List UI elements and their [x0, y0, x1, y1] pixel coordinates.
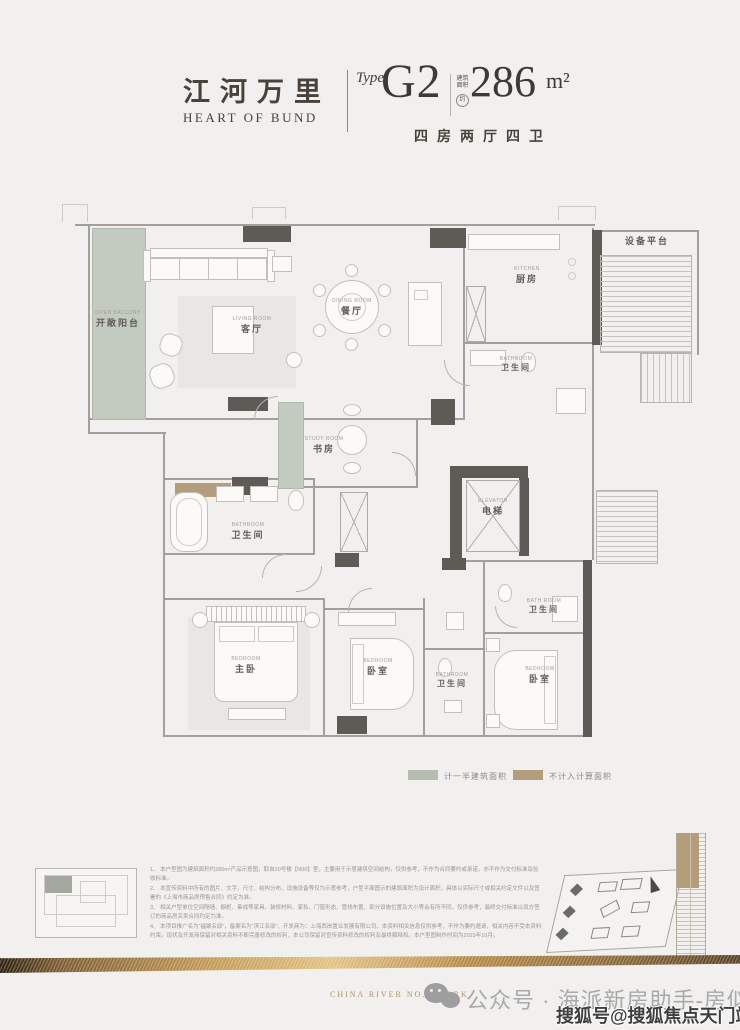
kitchen-sink — [414, 290, 428, 300]
dining-chair — [345, 264, 358, 277]
headboard — [206, 606, 306, 622]
wall-column — [450, 466, 528, 478]
wall — [423, 648, 485, 650]
wall — [463, 228, 465, 420]
site-building-outline — [597, 881, 618, 892]
wall — [323, 608, 425, 610]
bathroom-sink — [250, 486, 278, 502]
site-building-outline — [620, 878, 643, 890]
door-arc — [392, 452, 416, 476]
wechat-eye — [430, 989, 433, 992]
pillow — [352, 644, 364, 704]
legend-swatch-excluded-area — [513, 770, 543, 780]
wall-column — [243, 226, 291, 242]
pillow — [258, 626, 294, 642]
floorplan-page: 江河万里 HEART OF BUND Type G2 建筑面积 约 286 m²… — [0, 0, 740, 1030]
wall — [597, 230, 697, 232]
room-label-dining: DINING ROOM 餐厅 — [332, 298, 372, 317]
room-label-elevator: ELEVATOR 电梯 — [478, 498, 508, 517]
bed-bench — [228, 708, 286, 720]
wall-column — [450, 478, 462, 558]
wall-column — [430, 228, 466, 248]
legend-label-excluded-area: 不计入计算面积 — [549, 771, 612, 782]
wall — [483, 560, 485, 735]
key-plan-outline — [80, 881, 106, 903]
gold-ribbon — [0, 955, 740, 973]
wall — [88, 432, 166, 434]
half-counted-area — [278, 402, 304, 489]
wall — [163, 553, 315, 555]
cabinet — [272, 256, 292, 272]
wall-column — [337, 716, 367, 734]
wall-column — [335, 553, 359, 567]
stairs — [596, 490, 658, 564]
disclaimer-notes: 1、 本户型图为建筑面积约286m²产品示意图，取自20号楼【N00】室，主要用… — [150, 866, 542, 942]
toilet — [288, 490, 304, 511]
armchair — [146, 360, 177, 391]
toilet — [498, 584, 512, 602]
site-building-outline — [631, 901, 651, 913]
room-label-equipment-platform: 设备平台 — [625, 234, 669, 247]
disclaimer-note: 3、 相关户型单位空间隔墙、橱柜、集成等家具、装修材料、家私、门窗形态、管线布置… — [150, 904, 542, 922]
study-chair — [343, 404, 361, 416]
room-label-balcony: OPEN BALCONY 开敞阳台 — [95, 310, 140, 329]
wechat-bubble-small — [441, 992, 460, 1008]
elevation-grid-highlight — [677, 833, 699, 888]
nightstand — [304, 612, 320, 628]
dining-chair — [313, 284, 326, 297]
wall — [483, 632, 585, 634]
kitchen-cabinet — [466, 286, 486, 342]
room-label-master-bath: BATHROOM 卫生间 — [231, 522, 264, 541]
site-building-block — [555, 928, 568, 941]
brand-name-en: HEART OF BUND — [183, 110, 343, 126]
area-unit: m² — [546, 68, 570, 94]
wall — [465, 560, 583, 562]
shower — [556, 388, 586, 414]
dining-chair — [345, 338, 358, 351]
area-approx-badge: 约 — [456, 94, 469, 107]
hob-burner — [568, 272, 576, 280]
bathroom-sink — [444, 700, 462, 713]
wall-column — [442, 558, 466, 570]
dining-chair — [378, 324, 391, 337]
room-label-living: LIVING ROOM 客厅 — [233, 316, 272, 335]
area-prefix: 建筑面积 — [456, 76, 469, 90]
site-building-block — [570, 884, 583, 897]
room-label-kitchen: KITCHEN 厨房 — [514, 266, 539, 285]
bathtub-inner — [176, 498, 202, 546]
hob-burner — [568, 258, 576, 266]
wall-column — [583, 560, 592, 737]
door-arc — [444, 360, 470, 386]
wall — [423, 598, 425, 735]
header-divider — [347, 70, 348, 132]
dresser — [338, 612, 396, 626]
wall — [163, 735, 585, 737]
exterior-ledge — [558, 206, 596, 220]
door-arc — [348, 588, 372, 612]
wall — [313, 478, 315, 555]
wall-column — [519, 478, 529, 556]
sofa-armrest — [143, 250, 151, 282]
wechat-icon — [424, 983, 466, 1015]
wall-column — [431, 399, 455, 425]
type-label: Type — [356, 70, 384, 87]
elevation-grid-strip — [676, 833, 706, 957]
nightstand — [192, 612, 208, 628]
wechat-eye — [438, 989, 441, 992]
dining-chair — [378, 284, 391, 297]
door-arc — [262, 554, 286, 578]
stairs — [640, 353, 692, 403]
room-label-study: STUDY ROOM 书房 — [305, 436, 344, 455]
brand-name-cn: 江河万里 — [183, 70, 333, 109]
side-table — [286, 352, 302, 368]
room-label-bedroom2: BEDROOM 卧室 — [363, 658, 392, 677]
wall — [293, 486, 418, 488]
wall — [697, 230, 699, 355]
study-chair — [343, 462, 361, 474]
type-value: G2 — [381, 54, 442, 109]
storage-cabinet — [340, 492, 368, 552]
site-building-block — [563, 906, 576, 919]
bathroom-sink — [216, 486, 244, 502]
stairs — [600, 255, 692, 353]
room-label-bedroom3: BEDROOM 卧室 — [525, 666, 554, 685]
wall — [416, 418, 418, 488]
sofa-back — [150, 248, 268, 258]
exterior-ledge — [62, 204, 88, 222]
site-building-outline — [621, 925, 641, 937]
wall — [323, 598, 325, 735]
legend-label-half-area: 计一半建筑面积 — [444, 771, 507, 782]
nightstand — [486, 638, 500, 652]
sohu-watermark: 搜狐号@搜狐焦点天门站 — [556, 1002, 740, 1028]
layout-description: 四房两厅四卫 — [378, 126, 588, 146]
wall — [465, 342, 593, 344]
key-plan-thumbnail — [35, 868, 137, 938]
nightstand — [486, 714, 500, 728]
kitchen-counter — [468, 234, 560, 250]
pillow — [219, 626, 255, 642]
site-building-outline — [600, 900, 620, 918]
wall — [163, 598, 323, 600]
exterior-ledge — [252, 207, 286, 219]
disclaimer-note: 1、 本户型图为建筑面积约286m²产品示意图，取自20号楼【N00】室，主要用… — [150, 866, 542, 884]
disclaimer-note: 2、 本宣传资料中所有的图片、文字、尺寸、结构分布、设施设备等仅为示意参考，户型… — [150, 885, 542, 903]
door-arc — [495, 606, 517, 628]
area-value: 286 — [470, 56, 536, 107]
site-building-outline — [590, 927, 610, 939]
elevation-grid-line — [690, 833, 691, 957]
washer — [446, 612, 464, 630]
area-divider — [450, 74, 451, 116]
door-arc — [296, 566, 322, 592]
wall — [75, 224, 595, 226]
room-label-bath-kitchen: BATHROOM 卫生间 — [500, 356, 533, 373]
disclaimer-note: 4、 本项目推广名为“福聚名邸”，备案名为“滨江名邸”，开发商为：上海西岸置业发… — [150, 923, 542, 941]
room-label-bath-mid: BATHROOM 卫生间 — [436, 672, 469, 689]
room-label-master-bedroom: BEDROOM 主卧 — [231, 656, 260, 675]
site-plan-diagram — [546, 869, 684, 953]
dining-chair — [313, 324, 326, 337]
wall — [88, 224, 90, 434]
legend-swatch-half-area — [408, 770, 438, 780]
room-label-bath-right: BATH ROOM 卫生间 — [527, 598, 561, 615]
sofa — [150, 258, 268, 280]
